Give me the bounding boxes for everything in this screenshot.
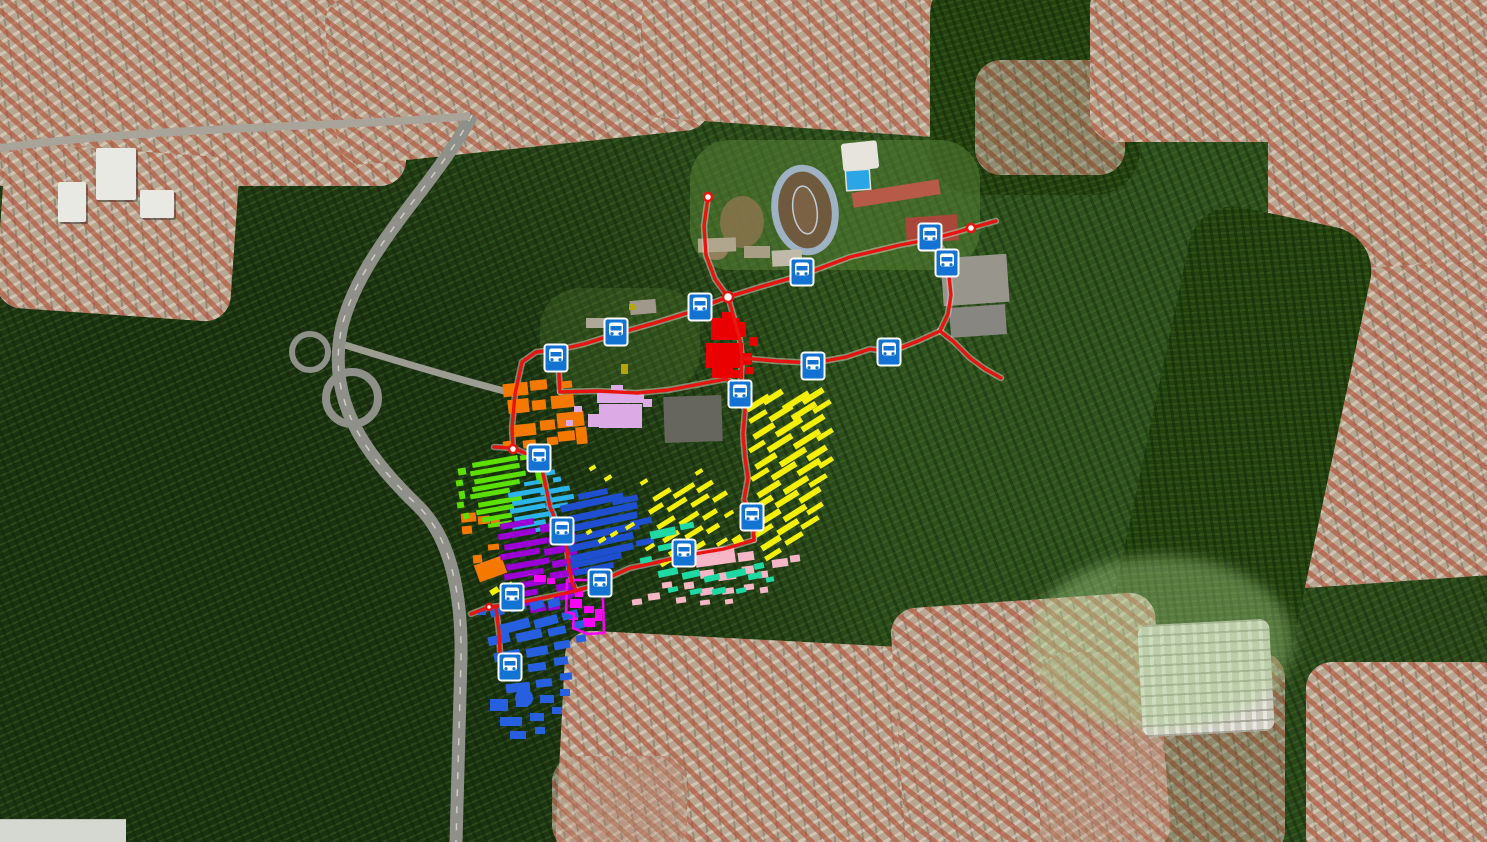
bus-stop-icon[interactable] xyxy=(545,345,568,372)
bus-stop-icon[interactable] xyxy=(605,319,628,346)
bus-glyph-wheel xyxy=(506,597,509,600)
building-footprint xyxy=(504,537,548,551)
building-footprint xyxy=(457,501,465,508)
building-footprint xyxy=(532,399,547,410)
bus-glyph-wheel xyxy=(514,597,517,600)
bus-glyph-windshield xyxy=(695,301,706,306)
bus-glyph-windshield xyxy=(557,525,568,530)
building-footprint xyxy=(530,713,544,721)
building-footprint xyxy=(724,510,735,519)
building-footprint xyxy=(525,645,548,658)
bus-glyph-windshield xyxy=(507,591,518,596)
building-footprint xyxy=(547,578,555,584)
building-footprint xyxy=(510,731,526,739)
bus-stop-icon[interactable] xyxy=(589,570,612,597)
building-footprint xyxy=(528,662,547,672)
building-footprint xyxy=(560,672,573,680)
building-footprint xyxy=(706,343,743,368)
building-footprint xyxy=(753,562,764,570)
building-footprint xyxy=(488,543,500,550)
building-footprint xyxy=(806,502,824,516)
building-footprint xyxy=(550,394,574,409)
building-footprint xyxy=(652,487,672,502)
bus-glyph-wheel xyxy=(742,394,745,397)
bus-glyph-wheel xyxy=(512,667,515,670)
building-footprint xyxy=(574,406,582,412)
bus-glyph-windshield xyxy=(808,360,819,365)
building-footprint xyxy=(695,468,704,476)
building-footprint xyxy=(462,525,473,534)
building-footprint xyxy=(456,479,464,486)
bus-glyph-windshield xyxy=(505,661,516,666)
bus-glyph-wheel xyxy=(541,458,544,461)
bus-glyph-wheel xyxy=(754,517,757,520)
building-footprint xyxy=(748,409,768,424)
route-node-marker xyxy=(509,445,517,453)
bus-glyph-wheel xyxy=(564,531,567,534)
building-footprint xyxy=(684,581,695,589)
building-footprint xyxy=(524,480,540,487)
building-footprint xyxy=(548,494,574,503)
red-sector xyxy=(706,312,758,378)
building-footprint xyxy=(500,717,522,726)
building-footprint xyxy=(489,586,500,596)
building-footprint xyxy=(515,628,542,642)
building-footprint xyxy=(584,606,594,613)
bus-glyph-wheel xyxy=(949,263,952,266)
bus-stop-icon[interactable] xyxy=(878,339,901,366)
building-footprint xyxy=(749,337,758,346)
building-footprint xyxy=(540,695,554,703)
bus-glyph-wheel xyxy=(746,517,749,520)
building-footprint xyxy=(553,476,562,482)
building-footprint xyxy=(648,592,661,601)
building-footprint xyxy=(544,545,567,556)
building-footprint xyxy=(533,614,559,629)
building-footprint xyxy=(737,551,754,562)
bus-stop-icon[interactable] xyxy=(499,654,522,681)
building-footprint xyxy=(561,380,573,388)
map-viewport[interactable] xyxy=(0,0,1487,842)
building-footprint xyxy=(772,558,789,568)
route-node-marker xyxy=(486,604,492,610)
building-footprint xyxy=(756,480,781,499)
building-footprint xyxy=(768,404,793,423)
bus-glyph-wheel xyxy=(941,263,944,266)
building-footprint xyxy=(629,304,635,310)
bus-glyph-wheel xyxy=(883,352,886,355)
bus-glyph-wheel xyxy=(550,358,553,361)
bus-glyph-wheel xyxy=(618,332,621,335)
building-footprint xyxy=(643,399,652,407)
building-footprint xyxy=(507,398,529,414)
bus-glyph-wheel xyxy=(610,332,613,335)
building-footprint xyxy=(754,452,778,470)
building-footprint xyxy=(690,493,710,508)
bus-stop-icon[interactable] xyxy=(741,504,764,531)
building-footprint xyxy=(473,555,483,564)
building-footprint xyxy=(666,497,687,513)
building-footprint xyxy=(793,429,822,450)
bus-glyph-wheel xyxy=(924,237,927,240)
building-footprint xyxy=(583,618,595,627)
bus-stop-icon[interactable] xyxy=(729,381,752,408)
bus-glyph-wheel xyxy=(734,394,737,397)
bus-stop-icon[interactable] xyxy=(673,540,696,567)
building-footprint xyxy=(588,414,604,427)
route-node-marker xyxy=(723,292,733,302)
building-footprint xyxy=(575,426,588,444)
building-footprint xyxy=(736,587,747,594)
bus-stop-icon[interactable] xyxy=(689,294,712,321)
bus-glyph-windshield xyxy=(534,452,545,457)
building-footprint xyxy=(547,625,566,637)
building-footprint xyxy=(490,699,508,711)
bus-glyph-wheel xyxy=(702,307,705,310)
bus-glyph-wheel xyxy=(686,553,689,556)
bus-glyph-wheel xyxy=(796,272,799,275)
bus-glyph-wheel xyxy=(804,272,807,275)
building-footprint xyxy=(458,491,465,500)
bus-glyph-wheel xyxy=(602,583,605,586)
building-footprint xyxy=(604,474,613,482)
building-footprint xyxy=(700,599,711,605)
building-footprint xyxy=(506,557,550,571)
building-footprint xyxy=(784,531,804,546)
building-footprint xyxy=(595,609,602,621)
building-footprint xyxy=(712,490,728,503)
bus-glyph-wheel xyxy=(558,358,561,361)
bus-stop-icon[interactable] xyxy=(791,259,814,286)
bus-stop-icon[interactable] xyxy=(551,518,574,545)
building-footprint xyxy=(790,554,801,562)
building-footprint xyxy=(640,478,649,486)
building-footprint xyxy=(725,598,734,604)
building-footprint xyxy=(536,678,553,688)
route-polyline xyxy=(560,379,741,394)
building-footprint xyxy=(535,727,545,734)
building-footprint xyxy=(752,422,776,440)
map-attribution-panel xyxy=(0,819,126,842)
building-footprint xyxy=(566,420,573,426)
bus-stop-icon[interactable] xyxy=(528,445,551,472)
building-footprint xyxy=(808,473,828,488)
bus-stop-icon[interactable] xyxy=(501,584,524,611)
building-footprint xyxy=(657,567,678,578)
building-footprint xyxy=(588,464,596,471)
building-footprint xyxy=(800,515,820,530)
bus-glyph-windshield xyxy=(925,231,936,236)
building-footprint xyxy=(676,596,687,603)
building-footprint xyxy=(457,467,466,475)
building-footprint xyxy=(760,586,769,593)
building-footprint xyxy=(621,364,628,374)
building-footprint xyxy=(750,467,770,482)
bus-stop-icon[interactable] xyxy=(802,353,825,380)
building-footprint xyxy=(512,423,536,437)
bus-glyph-wheel xyxy=(807,366,810,369)
building-footprint xyxy=(552,707,562,714)
building-footprint xyxy=(540,419,556,431)
building-footprint xyxy=(463,513,470,520)
building-footprint xyxy=(515,689,533,707)
bus-glyph-wheel xyxy=(556,531,559,534)
building-footprint xyxy=(530,379,548,391)
building-footprint xyxy=(554,656,569,666)
building-footprint xyxy=(672,482,695,499)
bus-glyph-windshield xyxy=(611,326,622,331)
building-footprint xyxy=(748,440,766,454)
building-footprint xyxy=(498,528,536,541)
building-footprint xyxy=(508,487,544,498)
building-footprint xyxy=(681,569,700,580)
bus-glyph-windshield xyxy=(884,346,895,351)
building-footprint xyxy=(798,486,822,504)
building-footprint xyxy=(558,430,576,442)
route-node-marker xyxy=(967,224,975,232)
building-footprint xyxy=(702,508,718,521)
bus-glyph-windshield xyxy=(679,547,690,552)
building-footprint xyxy=(706,523,721,535)
building-footprint xyxy=(599,404,642,428)
bus-stop-icon[interactable] xyxy=(919,224,942,251)
bus-glyph-wheel xyxy=(504,667,507,670)
bus-glyph-windshield xyxy=(735,388,746,393)
bus-glyph-wheel xyxy=(815,366,818,369)
building-footprint xyxy=(560,689,570,696)
bus-glyph-wheel xyxy=(694,307,697,310)
building-footprint xyxy=(553,640,570,651)
bus-glyph-wheel xyxy=(678,553,681,556)
bus-glyph-windshield xyxy=(797,266,808,271)
building-footprint xyxy=(745,367,754,374)
bus-glyph-wheel xyxy=(891,352,894,355)
campus-overlay xyxy=(0,0,1487,842)
building-footprint xyxy=(570,599,582,608)
building-footprint xyxy=(648,502,664,515)
building-footprint xyxy=(800,414,825,433)
bus-glyph-wheel xyxy=(533,458,536,461)
building-footprint xyxy=(696,480,714,494)
bus-stop-icon[interactable] xyxy=(936,250,959,277)
bus-glyph-windshield xyxy=(595,577,606,582)
building-footprint xyxy=(632,598,643,605)
bus-glyph-wheel xyxy=(932,237,935,240)
bus-glyph-wheel xyxy=(594,583,597,586)
building-footprint xyxy=(575,634,586,643)
bus-glyph-windshield xyxy=(747,511,758,516)
bus-glyph-windshield xyxy=(551,352,562,357)
route-node-marker xyxy=(704,193,712,201)
bus-glyph-windshield xyxy=(942,257,953,262)
building-footprint xyxy=(534,575,546,582)
